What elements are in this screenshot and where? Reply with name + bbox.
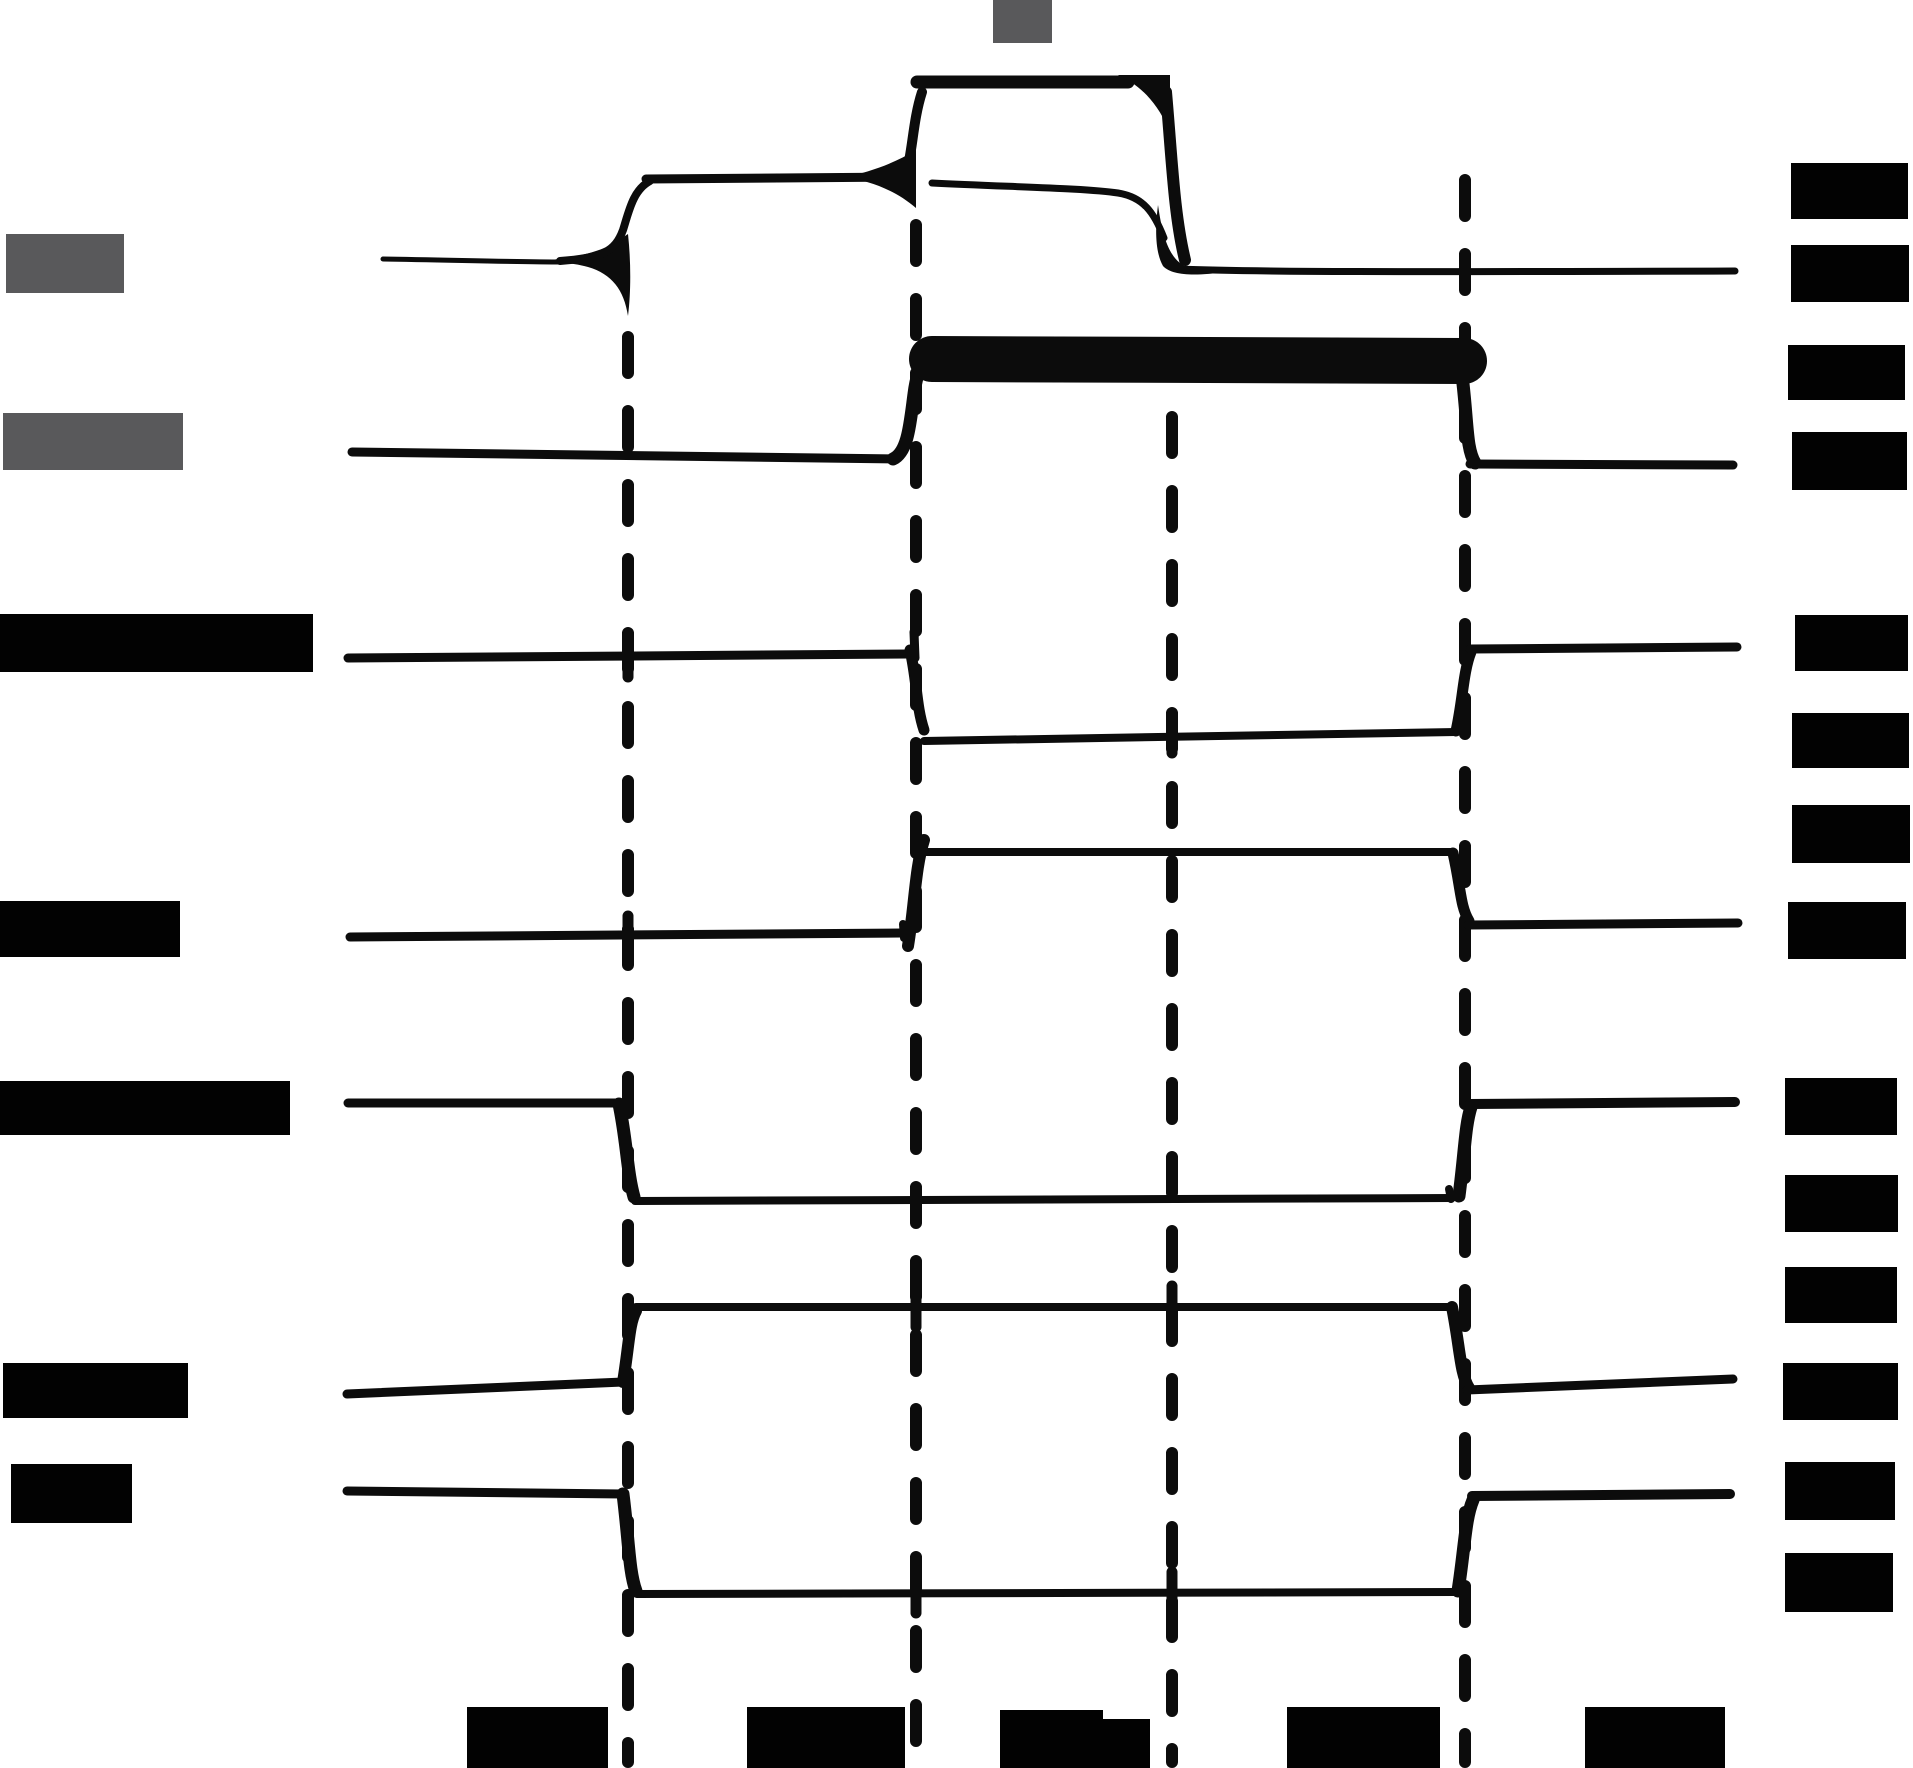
timing-diagram-canvas — [0, 0, 1913, 1768]
trace-3-segment-5 — [1470, 647, 1737, 649]
trace-1-segment-0 — [383, 259, 562, 262]
level-annotation-5-redaction — [1795, 615, 1908, 671]
level-annotation-8-redaction — [1788, 902, 1906, 959]
level-annotation-13-redaction — [1785, 1462, 1895, 1520]
trace-1-segment-11 — [1180, 269, 1735, 272]
time-interval-4-redaction — [1287, 1707, 1440, 1768]
trace-7-segment-2 — [637, 1592, 1456, 1594]
level-annotation-14-redaction — [1785, 1553, 1893, 1612]
trace-5-segment-2 — [635, 1198, 1452, 1201]
signal-5-name-redaction — [0, 1081, 290, 1135]
time-interval-5-redaction — [1585, 1707, 1725, 1768]
time-interval-1-redaction — [467, 1707, 608, 1768]
level-annotation-2-redaction — [1791, 245, 1909, 302]
level-annotation-6-redaction — [1792, 713, 1909, 768]
top-annotations — [993, 0, 1052, 43]
level-annotation-7-redaction — [1792, 805, 1910, 863]
trace-5-segment-3 — [1449, 1189, 1451, 1199]
time-interval-3-subscript-redaction — [1103, 1719, 1150, 1768]
level-annotation-4-redaction — [1792, 432, 1907, 490]
signal-3-name-redaction — [0, 614, 313, 672]
signal-6-name-redaction — [3, 1363, 188, 1418]
signal-7-name-redaction — [11, 1464, 132, 1523]
trace-5-segment-5 — [1470, 1102, 1735, 1104]
level-annotation-3-redaction — [1788, 345, 1905, 400]
trace-4-segment-5 — [1468, 923, 1738, 925]
level-annotation-12-redaction — [1783, 1363, 1898, 1420]
figure-background — [0, 0, 1913, 1768]
signal-1-name-redaction — [6, 234, 124, 293]
time-interval-3-redaction — [1000, 1710, 1103, 1768]
level-annotation-11-redaction — [1785, 1267, 1897, 1323]
signal-2-name-redaction — [3, 413, 183, 470]
level-annotation-9-redaction — [1785, 1078, 1897, 1135]
timing-diagram-figure — [0, 0, 1913, 1768]
trace-2-segment-4 — [1470, 464, 1733, 465]
top-annotation-redaction — [993, 0, 1052, 43]
level-annotation-1-redaction — [1791, 163, 1908, 219]
trace-7-segment-4 — [1472, 1494, 1730, 1496]
trace-7-segment-0 — [347, 1491, 623, 1494]
time-interval-2-redaction — [747, 1707, 905, 1768]
trace-2-segment-2 — [932, 359, 1464, 361]
level-annotation-10-redaction — [1785, 1175, 1898, 1232]
signal-4-name-redaction — [0, 901, 180, 957]
